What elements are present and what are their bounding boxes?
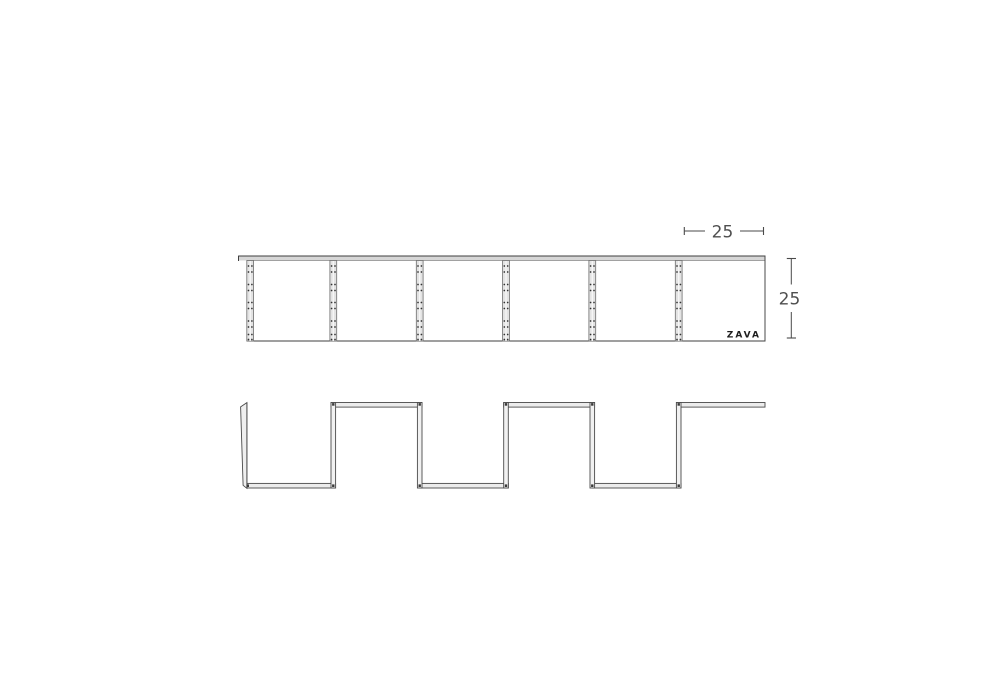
shelf-panel <box>506 261 592 342</box>
screw-dot <box>507 302 509 304</box>
screw-dot <box>503 339 505 341</box>
screw-dot <box>334 302 336 304</box>
shelf-vertical <box>504 403 509 489</box>
screw-dot <box>248 284 250 286</box>
screw-dot <box>251 320 253 322</box>
screw-dot <box>593 326 595 328</box>
screw-dot <box>248 308 250 310</box>
height-dimension: 25 <box>779 259 801 339</box>
screw-dot <box>676 290 678 292</box>
screw-dot <box>680 302 682 304</box>
screw-dot <box>251 265 253 267</box>
left-end-panel <box>241 403 247 489</box>
zigzag-profile <box>247 403 765 489</box>
screw-dot <box>334 339 336 341</box>
screw-dot <box>676 308 678 310</box>
screw-dot <box>507 290 509 292</box>
screw-dot <box>331 271 333 273</box>
screw-dot <box>590 265 592 267</box>
screw-dot <box>248 339 250 341</box>
joint-mark <box>505 484 507 487</box>
screw-dot <box>507 320 509 322</box>
drawing-canvas: ZAVA 25 25 <box>0 0 1000 700</box>
panel-divider <box>503 261 510 342</box>
screw-dot <box>676 302 678 304</box>
technical-drawing: ZAVA 25 25 <box>0 0 1000 700</box>
screw-dot <box>503 308 505 310</box>
screw-dot <box>593 308 595 310</box>
joint-mark <box>591 403 593 406</box>
screw-dot <box>590 308 592 310</box>
shelf-segment-bottom <box>420 483 509 488</box>
screw-dot <box>417 339 419 341</box>
screw-dot <box>248 290 250 292</box>
screw-dot <box>680 290 682 292</box>
screw-dot <box>503 271 505 273</box>
screw-dot <box>590 284 592 286</box>
screw-dot <box>251 326 253 328</box>
screw-dot <box>331 326 333 328</box>
shelf-vertical <box>676 403 681 489</box>
screw-dot <box>417 302 419 304</box>
screw-dot <box>251 334 253 336</box>
screw-dot <box>251 284 253 286</box>
screw-dot <box>593 284 595 286</box>
screw-dot <box>334 320 336 322</box>
screw-dot <box>248 265 250 267</box>
screw-dot <box>248 326 250 328</box>
shelf-segment-top <box>331 403 422 408</box>
screw-dot <box>676 339 678 341</box>
joint-mark <box>678 403 680 406</box>
screw-dot <box>417 308 419 310</box>
top-view: ZAVA <box>239 256 766 341</box>
screw-dot <box>421 284 423 286</box>
screw-dot <box>334 265 336 267</box>
screw-dot <box>593 320 595 322</box>
screw-dot <box>676 271 678 273</box>
shelf-vertical <box>331 403 336 489</box>
screw-dot <box>417 334 419 336</box>
screw-dot <box>417 326 419 328</box>
shelf-vertical <box>417 403 422 489</box>
screw-dot <box>417 290 419 292</box>
height-dim-value: 25 <box>779 290 801 310</box>
joint-mark <box>419 484 421 487</box>
width-dim-value: 25 <box>712 223 734 243</box>
screw-dot <box>334 334 336 336</box>
screw-dot <box>676 320 678 322</box>
screw-dot <box>503 334 505 336</box>
screw-dot <box>503 284 505 286</box>
shelf-panel <box>592 261 678 342</box>
screw-dot <box>248 271 250 273</box>
screw-dot <box>680 284 682 286</box>
screw-dot <box>334 271 336 273</box>
zigzag-joints <box>247 403 680 487</box>
screw-dot <box>676 334 678 336</box>
screw-dot <box>421 302 423 304</box>
screw-dot <box>248 320 250 322</box>
screw-dot <box>421 265 423 267</box>
screw-dot <box>503 320 505 322</box>
screw-dot <box>251 290 253 292</box>
screw-dot <box>334 290 336 292</box>
screw-dot <box>421 320 423 322</box>
screw-dot <box>421 334 423 336</box>
shelf-segment-bottom <box>247 483 336 488</box>
screw-dot <box>503 302 505 304</box>
top-strip <box>239 256 766 261</box>
screw-dot <box>503 326 505 328</box>
screw-dot <box>507 326 509 328</box>
screw-dot <box>334 308 336 310</box>
screw-dot <box>331 265 333 267</box>
screw-dot <box>334 326 336 328</box>
screw-dot <box>421 326 423 328</box>
joint-mark <box>678 484 680 487</box>
screw-dot <box>590 271 592 273</box>
screw-dot <box>507 334 509 336</box>
screw-dot <box>331 334 333 336</box>
screw-dot <box>503 265 505 267</box>
screw-dot <box>680 271 682 273</box>
screw-dot <box>251 339 253 341</box>
front-view <box>241 403 765 489</box>
screw-dot <box>417 271 419 273</box>
panel-divider <box>330 261 337 342</box>
joint-mark <box>332 403 334 406</box>
panel-divider <box>247 261 254 342</box>
screw-dot <box>331 302 333 304</box>
screw-dot <box>507 308 509 310</box>
screw-dot <box>417 284 419 286</box>
screw-dot <box>593 339 595 341</box>
screw-dot <box>251 308 253 310</box>
screw-dot <box>680 326 682 328</box>
screw-dot <box>331 290 333 292</box>
shelf-panel <box>679 261 765 342</box>
screw-dot <box>331 339 333 341</box>
width-dimension: 25 <box>684 223 763 243</box>
screw-dot <box>590 339 592 341</box>
screw-dot <box>680 308 682 310</box>
screw-dot <box>334 284 336 286</box>
joint-mark <box>419 403 421 406</box>
joint-mark <box>505 403 507 406</box>
screw-dot <box>590 334 592 336</box>
shelf-segment-bottom <box>592 483 681 488</box>
screw-dot <box>590 290 592 292</box>
screw-dot <box>680 265 682 267</box>
screw-dot <box>676 284 678 286</box>
screw-dot <box>593 271 595 273</box>
shelf-vertical <box>590 403 595 489</box>
panel-divider <box>416 261 423 342</box>
screw-dot <box>676 265 678 267</box>
screw-dot <box>421 339 423 341</box>
screw-dot <box>331 308 333 310</box>
screw-dot <box>593 290 595 292</box>
joint-mark <box>591 484 593 487</box>
screw-dot <box>503 290 505 292</box>
screw-dot <box>680 320 682 322</box>
screw-dot <box>507 271 509 273</box>
shelf-panel <box>420 261 506 342</box>
screw-dot <box>680 334 682 336</box>
screw-dot <box>507 339 509 341</box>
screw-dot <box>593 334 595 336</box>
screw-dot <box>593 302 595 304</box>
joint-mark <box>332 484 334 487</box>
screw-dot <box>421 308 423 310</box>
screw-dot <box>248 334 250 336</box>
brand-logo: ZAVA <box>727 331 761 341</box>
screw-dot <box>590 320 592 322</box>
screw-dot <box>417 265 419 267</box>
screw-dot <box>593 265 595 267</box>
screw-dot <box>248 302 250 304</box>
screw-dot <box>331 284 333 286</box>
screw-dot <box>417 320 419 322</box>
screw-dot <box>251 302 253 304</box>
shelf-segment-top <box>676 403 765 408</box>
screw-dot <box>680 339 682 341</box>
screw-dot <box>251 271 253 273</box>
shelf-segment-top <box>504 403 595 408</box>
screw-dot <box>421 290 423 292</box>
screw-dot <box>507 284 509 286</box>
screw-dot <box>507 265 509 267</box>
screw-dot <box>676 326 678 328</box>
shelf-panel <box>333 261 419 342</box>
screw-dot <box>590 326 592 328</box>
panel-divider <box>589 261 596 342</box>
panel-divider <box>675 261 682 342</box>
screw-dot <box>421 271 423 273</box>
screw-dot <box>590 302 592 304</box>
shelf-panel <box>247 261 333 342</box>
screw-dot <box>331 320 333 322</box>
joint-mark <box>247 484 249 487</box>
